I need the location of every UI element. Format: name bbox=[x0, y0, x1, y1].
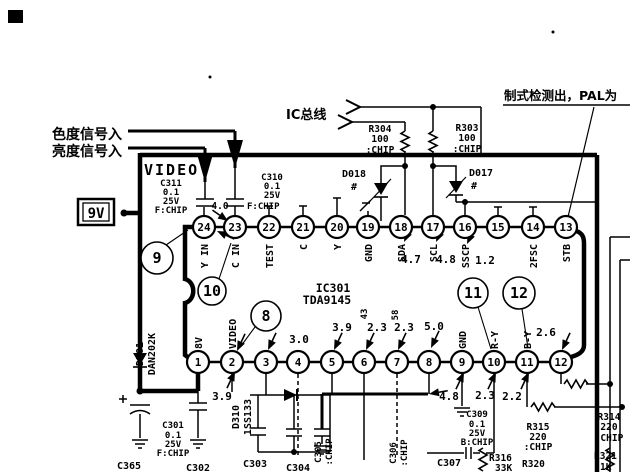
component-label: F:CHIP bbox=[155, 206, 188, 216]
component-label: :CHIP bbox=[400, 439, 410, 467]
resistor-symbol bbox=[564, 380, 588, 388]
component-label: 100 bbox=[458, 133, 475, 144]
resistor-symbol bbox=[429, 131, 437, 152]
luma-input-label: 亮度信号入 bbox=[52, 143, 122, 160]
pin-number: 2 bbox=[229, 356, 236, 369]
supply-9v-box: 9V bbox=[78, 199, 114, 225]
voltage-value: 4.7 bbox=[401, 253, 421, 266]
supply-label: 9V bbox=[88, 206, 105, 222]
probe-arrow-icon bbox=[431, 331, 439, 348]
ic-pin-16: 16SSCP bbox=[454, 216, 476, 268]
chroma-input-label: 色度信号入 bbox=[52, 126, 122, 143]
component-label: C304 bbox=[286, 463, 310, 472]
ic-bus-label: IC总线 bbox=[286, 107, 326, 123]
ic-pin-21: 21C bbox=[292, 216, 314, 250]
callout-number: 12 bbox=[510, 284, 528, 302]
ic-pin-6: 6 bbox=[353, 351, 375, 373]
scan-speck bbox=[209, 76, 212, 79]
pin-number: 17 bbox=[426, 221, 439, 234]
standard-detect-note: 制式检测出，PAL为 bbox=[504, 88, 617, 103]
pin-name: VIDEO bbox=[228, 319, 239, 349]
component-label: R320 bbox=[522, 459, 545, 470]
luma-input-arrow-icon bbox=[197, 154, 213, 182]
probe-arrow-icon bbox=[366, 333, 374, 350]
pin-name: GND bbox=[364, 244, 375, 262]
voltage-value: 2.3 bbox=[367, 321, 387, 334]
ic-pin-8: 8 bbox=[418, 351, 440, 373]
resistor-symbol bbox=[531, 403, 555, 411]
voltage-value: 1.2 bbox=[475, 254, 495, 267]
pin-number: 15 bbox=[491, 221, 504, 234]
scan-artifact bbox=[8, 10, 23, 23]
component-label: DAN202K bbox=[147, 333, 158, 375]
ic-pin-1: 18V bbox=[187, 337, 209, 373]
resistor-symbol bbox=[401, 131, 409, 152]
pin-number: 23 bbox=[228, 221, 241, 234]
pin-name: B-Y bbox=[523, 331, 534, 349]
schematic-canvas: 9V 色度信号入 亮度信号入 IC总线 制式检测出，PAL为 VIDEO C31… bbox=[0, 0, 630, 472]
probe-arrow-icon bbox=[562, 333, 570, 350]
callout-number: 8 bbox=[261, 307, 270, 325]
component-label: 25V bbox=[264, 191, 281, 201]
resistor-symbol bbox=[479, 448, 487, 471]
pin-number: 22 bbox=[262, 221, 275, 234]
ic-pin-10: 10R-Y bbox=[483, 331, 505, 373]
component-label: :CHIP bbox=[325, 438, 335, 466]
component-label: :CHIP bbox=[595, 433, 624, 444]
pin-name: STB bbox=[562, 244, 573, 262]
ic-pin-19: 19GND bbox=[357, 216, 379, 262]
voltage-value: 5.0 bbox=[424, 320, 444, 333]
pin-number: 4 bbox=[295, 356, 302, 369]
component-label: C309 bbox=[466, 410, 488, 420]
ic-part-number: TDA9145 bbox=[303, 293, 352, 307]
component-label: C305 bbox=[314, 441, 324, 463]
component-label: :CHIP bbox=[366, 145, 395, 156]
probe-arrow-icon bbox=[268, 333, 276, 350]
pin-number: 8 bbox=[426, 356, 433, 369]
pin-number: 21 bbox=[296, 221, 310, 234]
ic-pin-9: 9GND bbox=[451, 331, 473, 373]
pin-name: C IN bbox=[231, 244, 242, 268]
pin-name: C bbox=[299, 244, 310, 250]
probe-arrow-icon bbox=[398, 333, 406, 350]
component-label: C302 bbox=[186, 463, 210, 472]
voltage-value: 2.3 bbox=[475, 389, 495, 402]
ic-pin-5: 5 bbox=[321, 351, 343, 373]
ic-pin-22: 22TEST bbox=[258, 216, 280, 268]
pin-number: 9 bbox=[459, 356, 466, 369]
video-section-label: VIDEO bbox=[144, 161, 199, 179]
component-label: C307 bbox=[437, 458, 461, 469]
callout-number: 10 bbox=[203, 282, 221, 300]
component-label: F:CHIP bbox=[247, 202, 280, 212]
ground-symbol bbox=[132, 440, 148, 448]
pin-name: Y IN bbox=[200, 244, 211, 268]
pin-number: 18 bbox=[394, 221, 407, 234]
component-label: # bbox=[351, 182, 357, 193]
voltage-value: 3.9 bbox=[212, 390, 232, 403]
pin-name: Y bbox=[333, 244, 344, 250]
pin-name: TEST bbox=[265, 244, 276, 268]
probe-arrow-icon bbox=[456, 372, 464, 389]
pin-name: GND bbox=[458, 331, 469, 349]
pin-number: 20 bbox=[330, 221, 343, 234]
component-label: :CHIP bbox=[524, 442, 553, 453]
probe-arrow-icon bbox=[334, 333, 342, 350]
component-label: D301 bbox=[135, 342, 146, 366]
component-label: C306 bbox=[389, 442, 399, 464]
ic-pin-4: 4 bbox=[287, 351, 309, 373]
ic-bus-arrow-icon bbox=[346, 100, 360, 114]
voltage-value: 3.0 bbox=[289, 333, 309, 346]
ic-bus-arrow-icon bbox=[338, 115, 352, 129]
ic-pin-24: 24Y IN bbox=[193, 216, 215, 268]
scan-speck bbox=[552, 31, 555, 34]
component-label: R321 bbox=[594, 451, 617, 462]
pin-number: 16 bbox=[458, 221, 472, 234]
callout-number: 9 bbox=[152, 249, 161, 267]
ic-pin-11: 11B-Y bbox=[516, 331, 538, 373]
voltage-value: 3.9 bbox=[332, 321, 352, 334]
ground-symbol bbox=[190, 440, 206, 448]
component-label: 220 bbox=[600, 422, 617, 433]
ic-pin-13: 13STB bbox=[555, 216, 577, 262]
ic-pin-12: 12 bbox=[550, 351, 572, 373]
labels: 色度信号入 亮度信号入 IC总线 制式检测出，PAL为 VIDEO C311 0… bbox=[52, 88, 624, 472]
component-label: F:CHIP bbox=[157, 449, 190, 459]
component-label: C303 bbox=[243, 459, 267, 470]
schematic-page: 9V 色度信号入 亮度信号入 IC总线 制式检测出，PAL为 VIDEO C31… bbox=[0, 0, 630, 472]
ic-pin-14: 142FSC bbox=[522, 216, 544, 268]
ic-pin-15: 15 bbox=[487, 216, 509, 238]
pin-number: 11 bbox=[520, 356, 534, 369]
voltage-value: 2.2 bbox=[502, 390, 522, 403]
component-label: D310 bbox=[231, 405, 242, 429]
pin-number: 24 bbox=[197, 221, 211, 234]
ic-pin-3: 3 bbox=[255, 351, 277, 373]
pin-number: 7 bbox=[394, 356, 401, 369]
pin-number: 5 bbox=[329, 356, 336, 369]
standard-detect-leader-line bbox=[568, 107, 594, 217]
pin-number: 3 bbox=[263, 356, 270, 369]
pin-name: R-Y bbox=[490, 331, 501, 349]
component-label: 100 bbox=[371, 134, 388, 145]
voltage-value: 2.6 bbox=[536, 326, 556, 339]
pin-number: 6 bbox=[361, 356, 368, 369]
component-label: 1SS133 bbox=[243, 399, 254, 435]
callout-number: 11 bbox=[464, 284, 482, 302]
component-label: B:CHIP bbox=[461, 438, 494, 448]
ic-pin-23: 23C IN bbox=[224, 216, 246, 268]
probe-arrow-icon bbox=[521, 372, 529, 389]
pin-number: 14 bbox=[526, 221, 540, 234]
component-label: 33K bbox=[495, 463, 512, 472]
component-label: # bbox=[471, 181, 477, 192]
pin-name: SSCP bbox=[461, 244, 472, 268]
pin-number: 12 bbox=[554, 356, 567, 369]
pin-number: 13 bbox=[559, 221, 572, 234]
pin-number: 1 bbox=[195, 356, 202, 369]
voltage-value: 43 bbox=[360, 309, 370, 320]
voltage-value: 4.8 bbox=[436, 253, 456, 266]
component-label: D018 bbox=[342, 169, 366, 180]
ic-pin-7: 7 bbox=[386, 351, 408, 373]
pin-name: 2FSC bbox=[529, 244, 540, 268]
voltage-value: 58 bbox=[391, 310, 401, 321]
component-label: 1K bbox=[600, 462, 612, 472]
component-label: D017 bbox=[469, 168, 493, 179]
pin-number: 10 bbox=[487, 356, 500, 369]
component-label: C301 bbox=[162, 421, 184, 431]
component-label: C365 bbox=[117, 461, 141, 472]
component-label: :CHIP bbox=[453, 144, 482, 155]
voltage-value: 4.0 bbox=[211, 201, 228, 212]
probe-arrow-icon bbox=[488, 372, 496, 389]
voltage-value: 2.3 bbox=[394, 321, 414, 334]
diode-symbol bbox=[284, 389, 297, 401]
pin-number: 19 bbox=[361, 221, 374, 234]
waveform-callout-8: 8 bbox=[241, 301, 281, 346]
ic-pin-20: 20Y bbox=[326, 216, 348, 250]
pin-name: 8V bbox=[194, 337, 205, 349]
waveform-callout-9: 9 bbox=[141, 230, 188, 274]
voltage-value: 4.8 bbox=[439, 390, 459, 403]
